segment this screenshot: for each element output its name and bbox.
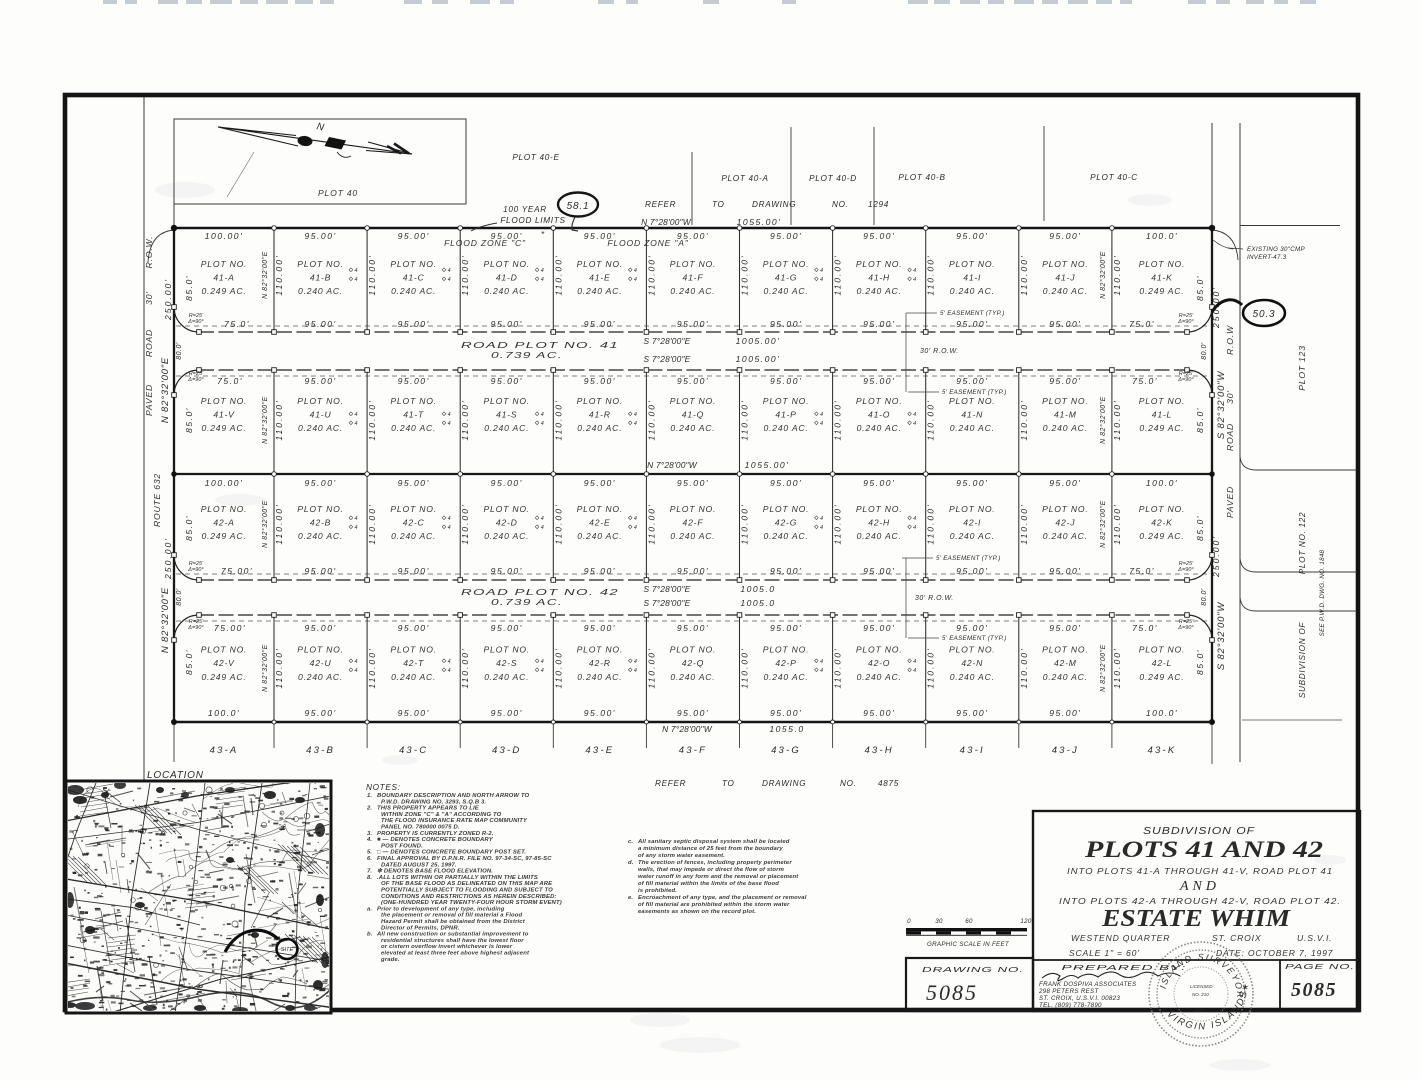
svg-text:85.0': 85.0' <box>184 275 194 301</box>
svg-text:4: 4 <box>448 525 451 531</box>
svg-text:N 82°32'00"E: N 82°32'00"E <box>261 396 269 444</box>
svg-text:95.00': 95.00' <box>398 708 430 718</box>
svg-text:0.240 AC.: 0.240 AC. <box>484 423 529 433</box>
svg-text:TEL. (809) 778-7890: TEL. (809) 778-7890 <box>1039 1002 1102 1009</box>
svg-text:5085: 5085 <box>1291 979 1337 1001</box>
svg-text:95.00': 95.00' <box>863 623 895 633</box>
svg-text:OF THE BASE FLOOD AS DELINEATE: OF THE BASE FLOOD AS DELINEATED ON THIS … <box>381 881 553 887</box>
svg-text:walls, that may impede or dire: walls, that may impede or direct the flo… <box>638 867 784 873</box>
svg-text:41-F: 41-F <box>683 273 704 283</box>
svg-text:30: 30 <box>935 918 943 925</box>
svg-text:4: 4 <box>355 525 358 531</box>
svg-text:4: 4 <box>820 659 823 665</box>
svg-text:95.00': 95.00' <box>770 623 802 633</box>
svg-text:95.00': 95.00' <box>304 708 336 718</box>
svg-text:100.00': 100.00' <box>205 478 243 488</box>
svg-text:41-U: 41-U <box>310 410 332 420</box>
svg-text:NO.: NO. <box>832 200 849 209</box>
svg-text:0.240 AC.: 0.240 AC. <box>763 672 808 682</box>
svg-text:110.00': 110.00' <box>926 503 936 544</box>
svg-text:80.0': 80.0' <box>176 342 183 360</box>
svg-text:95.00': 95.00' <box>584 478 616 488</box>
svg-text:42-H: 42-H <box>868 518 890 528</box>
svg-text:42-V: 42-V <box>213 658 235 668</box>
svg-text:0.240 AC.: 0.240 AC. <box>298 286 343 296</box>
svg-text:INVERT-47.3: INVERT-47.3 <box>1247 254 1287 261</box>
svg-text:4: 4 <box>355 668 358 674</box>
svg-text:0.240 AC.: 0.240 AC. <box>484 672 529 682</box>
svg-text:0.240 AC.: 0.240 AC. <box>950 423 995 433</box>
svg-text:0.240 AC.: 0.240 AC. <box>950 672 995 682</box>
svg-text:298 PETERS REST: 298 PETERS REST <box>1038 988 1099 995</box>
svg-text:PAGE NO.: PAGE NO. <box>1285 964 1355 971</box>
svg-text:Hazard Permit shall be obtaine: Hazard Permit shall be obtained from the… <box>381 919 526 925</box>
svg-text:4: 4 <box>541 525 544 531</box>
svg-text:43-C: 43-C <box>399 745 428 756</box>
svg-text:PLOT NO. 122: PLOT NO. 122 <box>1298 512 1307 575</box>
svg-text:0.240 AC.: 0.240 AC. <box>577 286 622 296</box>
svg-text:4: 4 <box>355 421 358 427</box>
svg-text:SCALE 1" = 60': SCALE 1" = 60' <box>1069 948 1140 958</box>
svg-text:110.00': 110.00' <box>460 254 470 295</box>
svg-text:110.00': 110.00' <box>553 647 563 688</box>
svg-text:41-M: 41-M <box>1054 410 1077 420</box>
svg-text:0.240 AC.: 0.240 AC. <box>391 531 436 541</box>
svg-text:58.1: 58.1 <box>567 201 590 212</box>
svg-text:✶: ✶ <box>1240 983 1249 994</box>
svg-text:DATED AUGUST 25, 1997.: DATED AUGUST 25, 1997. <box>381 862 457 868</box>
svg-text:0.240 AC.: 0.240 AC. <box>763 423 808 433</box>
svg-text:42-D: 42-D <box>496 518 518 528</box>
svg-text:a.: a. <box>367 906 372 912</box>
svg-text:THIS PROPERTY APPEARS TO LIE: THIS PROPERTY APPEARS TO LIE <box>377 806 480 812</box>
svg-text:95.00': 95.00' <box>677 478 709 488</box>
svg-text:75.0': 75.0' <box>1132 376 1158 386</box>
svg-text:PLOT NO.: PLOT NO. <box>577 396 624 406</box>
svg-text:PLOT NO.: PLOT NO. <box>1139 259 1186 269</box>
svg-text:0.240 AC.: 0.240 AC. <box>391 672 436 682</box>
svg-text:110.00': 110.00' <box>1019 503 1029 544</box>
svg-text:43-J: 43-J <box>1052 745 1079 756</box>
svg-text:PLOT NO.: PLOT NO. <box>670 504 717 514</box>
svg-text:42-T: 42-T <box>403 658 424 668</box>
svg-text:95.00': 95.00' <box>304 623 336 633</box>
svg-text:41-B: 41-B <box>310 273 331 283</box>
svg-text:43-B: 43-B <box>306 745 335 756</box>
svg-text:4: 4 <box>541 421 544 427</box>
svg-text:DRAWING: DRAWING <box>752 200 796 209</box>
svg-text:42-S: 42-S <box>496 658 517 668</box>
svg-text:Δ=90°: Δ=90° <box>187 625 204 631</box>
svg-text:0.240 AC.: 0.240 AC. <box>577 672 622 682</box>
svg-text:95.00': 95.00' <box>677 319 709 329</box>
svg-text:1005.00': 1005.00' <box>736 354 781 364</box>
svg-text:0.240 AC.: 0.240 AC. <box>391 423 436 433</box>
svg-text:4: 4 <box>913 668 916 674</box>
svg-text:DATE: OCTOBER 7, 1997: DATE: OCTOBER 7, 1997 <box>1216 948 1334 958</box>
svg-text:0: 0 <box>907 918 911 925</box>
svg-text:S 82°32'00"W: S 82°32'00"W <box>1216 602 1227 670</box>
svg-text:110.00': 110.00' <box>460 647 470 688</box>
svg-text:ROAD PLOT NO. 41: ROAD PLOT NO. 41 <box>461 340 619 350</box>
svg-text:ROAD: ROAD <box>144 329 154 357</box>
svg-text:4: 4 <box>634 516 637 522</box>
svg-text:4: 4 <box>541 268 544 274</box>
svg-text:Δ=90°: Δ=90° <box>1177 319 1194 325</box>
svg-text:42-A: 42-A <box>213 518 234 528</box>
svg-text:4: 4 <box>448 516 451 522</box>
svg-text:PLOT NO.: PLOT NO. <box>949 645 996 655</box>
svg-text:41-H: 41-H <box>868 273 890 283</box>
svg-text:of fill material within the li: of fill material within the limits of th… <box>638 881 779 887</box>
svg-text:110.00': 110.00' <box>1112 503 1122 544</box>
svg-text:42-O: 42-O <box>868 658 890 668</box>
svg-text:80.0': 80.0' <box>176 588 183 606</box>
svg-text:PAVED: PAVED <box>144 384 154 416</box>
svg-text:REFER: REFER <box>655 779 686 788</box>
svg-text:4: 4 <box>820 525 823 531</box>
svg-text:4: 4 <box>448 421 451 427</box>
svg-text:95.00': 95.00' <box>1049 478 1081 488</box>
svg-text:4: 4 <box>634 659 637 665</box>
svg-text:5' EASEMENT (TYP.): 5' EASEMENT (TYP.) <box>942 389 1007 396</box>
svg-text:PLOT NO.: PLOT NO. <box>670 645 717 655</box>
svg-text:95.00': 95.00' <box>584 708 616 718</box>
svg-text:LOCATION: LOCATION <box>147 770 204 781</box>
svg-text:110.00': 110.00' <box>646 254 656 295</box>
svg-text:(ONE-HUNDRED YEAR TWENTY-FOUR: (ONE-HUNDRED YEAR TWENTY-FOUR HOUR STORM… <box>381 900 562 906</box>
svg-text:N 7°28'00"W: N 7°28'00"W <box>662 724 713 734</box>
svg-text:1970: 1970 <box>1194 1008 1205 1013</box>
svg-text:N 82°32'00"E: N 82°32'00"E <box>261 251 269 299</box>
svg-text:110.00': 110.00' <box>460 503 470 544</box>
svg-text:■ — DENOTES CONCRETE BOUNDARY: ■ — DENOTES CONCRETE BOUNDARY <box>377 837 494 843</box>
svg-text:PLOT NO.: PLOT NO. <box>763 504 810 514</box>
svg-text:PLOT NO.: PLOT NO. <box>1042 504 1089 514</box>
svg-text:41-C: 41-C <box>403 273 425 283</box>
svg-text:Δ=90°: Δ=90° <box>187 567 204 573</box>
svg-text:5' EASEMENT (TYP.): 5' EASEMENT (TYP.) <box>940 310 1005 317</box>
svg-text:95.00': 95.00' <box>863 566 895 576</box>
svg-text:PLOT NO.: PLOT NO. <box>1042 396 1089 406</box>
svg-text:0.240 AC.: 0.240 AC. <box>1043 423 1088 433</box>
svg-text:4: 4 <box>820 421 823 427</box>
svg-text:3.: 3. <box>367 831 372 837</box>
svg-text:PLOT 40-B: PLOT 40-B <box>898 173 945 182</box>
svg-text:41-K: 41-K <box>1151 273 1173 283</box>
svg-text:0.249 AC.: 0.249 AC. <box>201 286 246 296</box>
svg-text:110.00': 110.00' <box>367 647 377 688</box>
svg-text:PLOT NO.: PLOT NO. <box>390 396 437 406</box>
svg-text:FLOOD LIMITS: FLOOD LIMITS <box>500 216 565 225</box>
svg-text:95.00': 95.00' <box>398 478 430 488</box>
svg-text:4: 4 <box>355 277 358 283</box>
svg-text:INTO PLOTS 42-A THROUGH 42-V,: INTO PLOTS 42-A THROUGH 42-V, ROAD PLOT … <box>1059 896 1341 906</box>
svg-text:75.0': 75.0' <box>1132 623 1158 633</box>
svg-text:95.00': 95.00' <box>677 566 709 576</box>
svg-text:95.00': 95.00' <box>584 623 616 633</box>
svg-text:5085: 5085 <box>926 980 978 1005</box>
svg-text:100.00': 100.00' <box>205 231 243 241</box>
svg-text:POTENTIALLY SUBJECT TO FLOODIN: POTENTIALLY SUBJECT TO FLOODING AND SUBJ… <box>381 888 553 894</box>
svg-text:PLOT NO.: PLOT NO. <box>483 396 530 406</box>
svg-text:110.00': 110.00' <box>367 399 377 440</box>
svg-text:4: 4 <box>634 277 637 283</box>
svg-text:95.00': 95.00' <box>491 478 523 488</box>
svg-text:7.: 7. <box>367 869 372 875</box>
svg-text:easements as shown on the reco: easements as shown on the record plot. <box>638 909 756 915</box>
svg-text:TO: TO <box>722 779 735 788</box>
svg-text:250.00': 250.00' <box>163 278 173 321</box>
svg-text:4: 4 <box>913 659 916 665</box>
svg-text:PLOT NO.: PLOT NO. <box>949 396 996 406</box>
svg-text:41-G: 41-G <box>775 273 797 283</box>
svg-text:110.00': 110.00' <box>740 399 750 440</box>
svg-text:110.00': 110.00' <box>1019 399 1029 440</box>
svg-text:ROAD PLOT NO. 42: ROAD PLOT NO. 42 <box>461 587 619 597</box>
svg-text:S 7°28'00"E: S 7°28'00"E <box>644 598 691 608</box>
svg-text:42-B: 42-B <box>310 518 331 528</box>
svg-text:95.00': 95.00' <box>398 376 430 386</box>
svg-text:4: 4 <box>541 277 544 283</box>
svg-text:4: 4 <box>634 412 637 418</box>
svg-text:SUBDIVISION OF: SUBDIVISION OF <box>1143 826 1255 837</box>
svg-text:43-D: 43-D <box>492 745 521 756</box>
svg-text:110.00': 110.00' <box>1019 254 1029 295</box>
svg-text:DRAWING NO.: DRAWING NO. <box>922 967 1024 974</box>
svg-text:42-Q: 42-Q <box>682 658 704 668</box>
svg-text:0.240 AC.: 0.240 AC. <box>763 286 808 296</box>
svg-text:110.00': 110.00' <box>646 647 656 688</box>
svg-text:95.00': 95.00' <box>677 623 709 633</box>
svg-text:250.00': 250.00' <box>1211 535 1221 578</box>
svg-text:Prior to development of any ty: Prior to development of any type, includ… <box>377 906 505 912</box>
svg-text:residential structures shall h: residential structures shall have the lo… <box>381 938 524 944</box>
svg-text:6.: 6. <box>367 856 372 862</box>
svg-text:□ — DENOTES CONCRETE BOUNDARY: □ — DENOTES CONCRETE BOUNDARY POST SET. <box>377 850 526 856</box>
svg-text:30' R.O.W.: 30' R.O.W. <box>915 595 954 602</box>
svg-text:85.0': 85.0' <box>1195 649 1205 675</box>
svg-text:SITE: SITE <box>281 947 294 953</box>
svg-text:0.249 AC.: 0.249 AC. <box>201 672 246 682</box>
svg-text:41-D: 41-D <box>496 273 518 283</box>
svg-text:PLOT NO.: PLOT NO. <box>1139 396 1186 406</box>
svg-text:41-E: 41-E <box>589 273 610 283</box>
svg-text:NO. 210: NO. 210 <box>1192 992 1209 997</box>
svg-text:95.00': 95.00' <box>304 566 336 576</box>
svg-text:42-M: 42-M <box>1054 658 1077 668</box>
svg-text:42-L: 42-L <box>1152 658 1172 668</box>
svg-text:1055.0: 1055.0 <box>769 724 804 734</box>
svg-text:250.00': 250.00' <box>163 537 173 580</box>
svg-text:41-S: 41-S <box>496 410 517 420</box>
svg-text:ST. CROIX: ST. CROIX <box>1212 933 1261 943</box>
svg-text:110.00': 110.00' <box>926 399 936 440</box>
svg-text:42-J: 42-J <box>1055 518 1075 528</box>
svg-text:SEE P.W.D. DWG. NO. 1848: SEE P.W.D. DWG. NO. 1848 <box>1319 549 1326 636</box>
svg-text:TO: TO <box>712 200 725 209</box>
svg-text:0.240 AC.: 0.240 AC. <box>1043 531 1088 541</box>
svg-text:PLOT NO.: PLOT NO. <box>390 645 437 655</box>
svg-text:75.0': 75.0' <box>224 319 250 329</box>
svg-text:4: 4 <box>355 412 358 418</box>
svg-text:100.0': 100.0' <box>1146 231 1178 241</box>
svg-text:ESTATE WHIM: ESTATE WHIM <box>1101 906 1292 932</box>
svg-text:Director of Permits, DPNR.: Director of Permits, DPNR. <box>381 925 460 931</box>
svg-text:PLOT 40-A: PLOT 40-A <box>721 174 768 183</box>
svg-text:Δ=90°: Δ=90° <box>187 377 204 383</box>
svg-text:0.240 AC.: 0.240 AC. <box>763 531 808 541</box>
svg-text:Encroachment of any type, and: Encroachment of any type, and the placem… <box>638 895 807 901</box>
svg-text:grade.: grade. <box>380 957 400 963</box>
svg-text:PLOT NO.: PLOT NO. <box>949 259 996 269</box>
svg-text:0.240 AC.: 0.240 AC. <box>484 286 529 296</box>
svg-text:75.00': 75.00' <box>214 623 246 633</box>
svg-text:42-U: 42-U <box>310 658 332 668</box>
svg-text:95.00': 95.00' <box>491 566 523 576</box>
svg-text:0.739 AC.: 0.739 AC. <box>491 597 563 607</box>
svg-text:0.240 AC.: 0.240 AC. <box>1043 286 1088 296</box>
svg-text:ROUTE 632: ROUTE 632 <box>152 473 162 527</box>
svg-text:5.: 5. <box>367 850 372 856</box>
svg-text:110.00': 110.00' <box>740 503 750 544</box>
svg-text:85.0': 85.0' <box>1195 515 1205 541</box>
svg-text:95.00': 95.00' <box>1049 319 1081 329</box>
svg-text:95.00': 95.00' <box>398 231 430 241</box>
svg-text:43-F: 43-F <box>679 745 707 756</box>
svg-text:110.00': 110.00' <box>1112 647 1122 688</box>
svg-text:95.00': 95.00' <box>677 376 709 386</box>
svg-text:0.249 AC.: 0.249 AC. <box>1139 531 1184 541</box>
svg-text:BOUNDARY DESCRIPTION AND NORTH: BOUNDARY DESCRIPTION AND NORTH ARROW TO <box>377 793 530 799</box>
svg-text:PLOT NO.: PLOT NO. <box>856 504 903 514</box>
svg-text:PLOT NO.: PLOT NO. <box>201 504 248 514</box>
svg-text:95.00': 95.00' <box>1049 231 1081 241</box>
svg-text:0.240 AC.: 0.240 AC. <box>670 531 715 541</box>
svg-text:95.00': 95.00' <box>398 319 430 329</box>
svg-text:PROPERTY IS CURRENTLY ZONED R-: PROPERTY IS CURRENTLY ZONED R-2. <box>377 831 494 837</box>
svg-text:FLOOD ZONE "C": FLOOD ZONE "C" <box>444 238 526 248</box>
svg-text:95.00': 95.00' <box>956 623 988 633</box>
svg-text:PLOT NO.: PLOT NO. <box>390 504 437 514</box>
svg-text:95.00': 95.00' <box>584 319 616 329</box>
svg-text:PLOT NO.: PLOT NO. <box>390 259 437 269</box>
svg-text:N 82°32'00"E: N 82°32'00"E <box>1099 644 1107 692</box>
svg-text:110.00': 110.00' <box>1112 254 1122 295</box>
svg-text:0.240 AC.: 0.240 AC. <box>950 531 995 541</box>
svg-text:4: 4 <box>913 277 916 283</box>
svg-text:75.0': 75.0' <box>1129 566 1155 576</box>
svg-text:4: 4 <box>448 659 451 665</box>
svg-text:0.249 AC.: 0.249 AC. <box>1139 672 1184 682</box>
svg-text:N 82°32'00"E: N 82°32'00"E <box>1099 251 1107 299</box>
svg-text:95.00': 95.00' <box>1049 376 1081 386</box>
svg-text:0.249 AC.: 0.249 AC. <box>1139 286 1184 296</box>
svg-text:85.0': 85.0' <box>184 407 194 433</box>
svg-text:43-K: 43-K <box>1148 745 1177 756</box>
svg-text:75.0': 75.0' <box>217 376 243 386</box>
svg-text:PAVED: PAVED <box>1225 486 1235 518</box>
svg-text:d.: d. <box>628 860 634 866</box>
svg-text:S 7°28'00"E: S 7°28'00"E <box>644 584 691 594</box>
svg-text:PLOT NO.: PLOT NO. <box>1042 645 1089 655</box>
svg-text:110.00': 110.00' <box>553 399 563 440</box>
svg-text:PLOT NO.: PLOT NO. <box>763 259 810 269</box>
svg-text:110.00': 110.00' <box>833 503 843 544</box>
svg-text:4: 4 <box>541 668 544 674</box>
svg-text:42-G: 42-G <box>775 518 797 528</box>
svg-text:1055.00': 1055.00' <box>737 217 782 227</box>
svg-text:95.00': 95.00' <box>956 231 988 241</box>
svg-text:0.240 AC.: 0.240 AC. <box>391 286 436 296</box>
svg-text:FLOOD ZONE "A": FLOOD ZONE "A" <box>607 238 688 248</box>
svg-text:110.00': 110.00' <box>553 254 563 295</box>
svg-text:85.0': 85.0' <box>1195 275 1205 301</box>
svg-text:110.00': 110.00' <box>367 503 377 544</box>
svg-text:PLOT NO.: PLOT NO. <box>1139 645 1186 655</box>
svg-text:4: 4 <box>448 268 451 274</box>
svg-text:0.240 AC.: 0.240 AC. <box>577 423 622 433</box>
svg-text:4: 4 <box>355 268 358 274</box>
svg-text:95.00': 95.00' <box>956 376 988 386</box>
svg-text:95.00': 95.00' <box>398 566 430 576</box>
svg-text:Δ=90°: Δ=90° <box>1177 377 1194 383</box>
svg-text:4: 4 <box>541 659 544 665</box>
svg-text:PLOT NO.: PLOT NO. <box>763 645 810 655</box>
svg-text:42-I: 42-I <box>963 518 981 528</box>
svg-text:4: 4 <box>913 412 916 418</box>
svg-text:43-G: 43-G <box>771 745 801 756</box>
svg-text:110.00': 110.00' <box>833 399 843 440</box>
svg-text:4: 4 <box>913 421 916 427</box>
svg-text:80.0': 80.0' <box>1201 342 1208 360</box>
svg-text:95.00': 95.00' <box>770 478 802 488</box>
svg-text:0.249 AC.: 0.249 AC. <box>1139 423 1184 433</box>
svg-text:1294: 1294 <box>868 200 889 209</box>
svg-text:41-Q: 41-Q <box>682 410 704 420</box>
svg-text:1.: 1. <box>367 793 372 799</box>
svg-text:THE FLOOD INSURANCE RATE MAP C: THE FLOOD INSURANCE RATE MAP COMMUNITY <box>381 818 528 824</box>
svg-text:80.0': 80.0' <box>1201 588 1208 606</box>
svg-text:PLOT NO.: PLOT NO. <box>670 396 717 406</box>
svg-text:110.00': 110.00' <box>1112 399 1122 440</box>
svg-text:42-K: 42-K <box>1151 518 1173 528</box>
svg-text:41-N: 41-N <box>961 410 983 420</box>
svg-text:95.00': 95.00' <box>1049 566 1081 576</box>
svg-text:0.240 AC.: 0.240 AC. <box>298 531 343 541</box>
svg-text:elevated at least three feet a: elevated at least three feet above highe… <box>381 951 530 957</box>
svg-text:0.240 AC.: 0.240 AC. <box>670 672 715 682</box>
svg-text:SUBDIVISION OF: SUBDIVISION OF <box>1298 622 1307 699</box>
svg-text:95.00': 95.00' <box>956 566 988 576</box>
svg-text:95.00': 95.00' <box>304 231 336 241</box>
svg-text:85.0': 85.0' <box>184 515 194 541</box>
svg-text:0.240 AC.: 0.240 AC. <box>857 531 902 541</box>
svg-text:41-V: 41-V <box>213 410 235 420</box>
svg-text:8.: 8. <box>367 875 372 881</box>
svg-text:PLOT 40-C: PLOT 40-C <box>1090 173 1138 182</box>
svg-text:R.O.W: R.O.W <box>1225 325 1235 355</box>
svg-text:PLOT NO.: PLOT NO. <box>763 396 810 406</box>
svg-text:43-I: 43-I <box>960 745 985 756</box>
svg-text:INTO PLOTS 41-A THROUGH 41-V,: INTO PLOTS 41-A THROUGH 41-V, ROAD PLOT … <box>1067 866 1333 876</box>
svg-text:110.00': 110.00' <box>740 647 750 688</box>
svg-text:PANEL NO. 780000 0075 D.: PANEL NO. 780000 0075 D. <box>381 825 460 831</box>
svg-text:110.00': 110.00' <box>274 647 284 688</box>
svg-text:95.00': 95.00' <box>863 231 895 241</box>
svg-text:PLOT NO.: PLOT NO. <box>1042 259 1089 269</box>
svg-text:ROAD: ROAD <box>1225 423 1235 451</box>
